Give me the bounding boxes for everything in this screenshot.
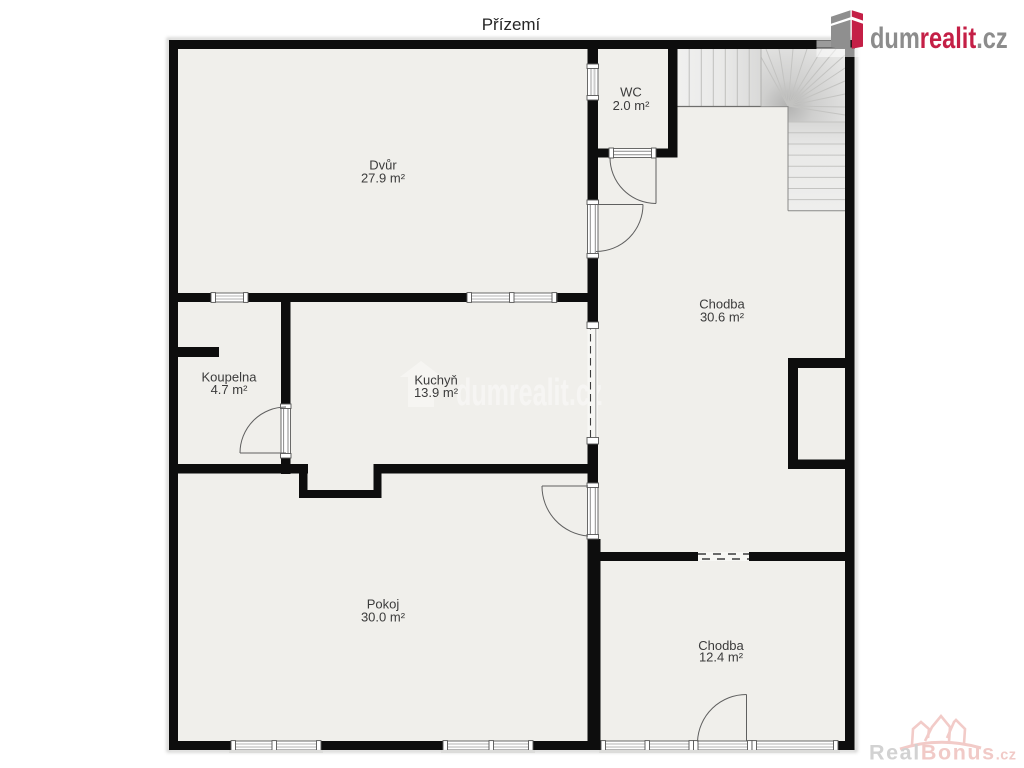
svg-text:13.9 m²: 13.9 m² — [414, 385, 459, 400]
svg-text:2.0 m²: 2.0 m² — [613, 98, 651, 113]
svg-text:dumrealit.cz: dumrealit.cz — [456, 371, 602, 413]
svg-text:12.4 m²: 12.4 m² — [699, 650, 744, 665]
svg-text:30.6 m²: 30.6 m² — [700, 310, 745, 325]
svg-text:Přízemí: Přízemí — [482, 15, 541, 34]
svg-text:RealBonus.cz: RealBonus.cz — [869, 741, 1017, 765]
svg-text:27.9 m²: 27.9 m² — [361, 171, 406, 186]
svg-text:4.7 m²: 4.7 m² — [211, 382, 249, 397]
svg-text:dumrealit.cz: dumrealit.cz — [870, 22, 1008, 55]
svg-text:30.0 m²: 30.0 m² — [361, 610, 406, 625]
